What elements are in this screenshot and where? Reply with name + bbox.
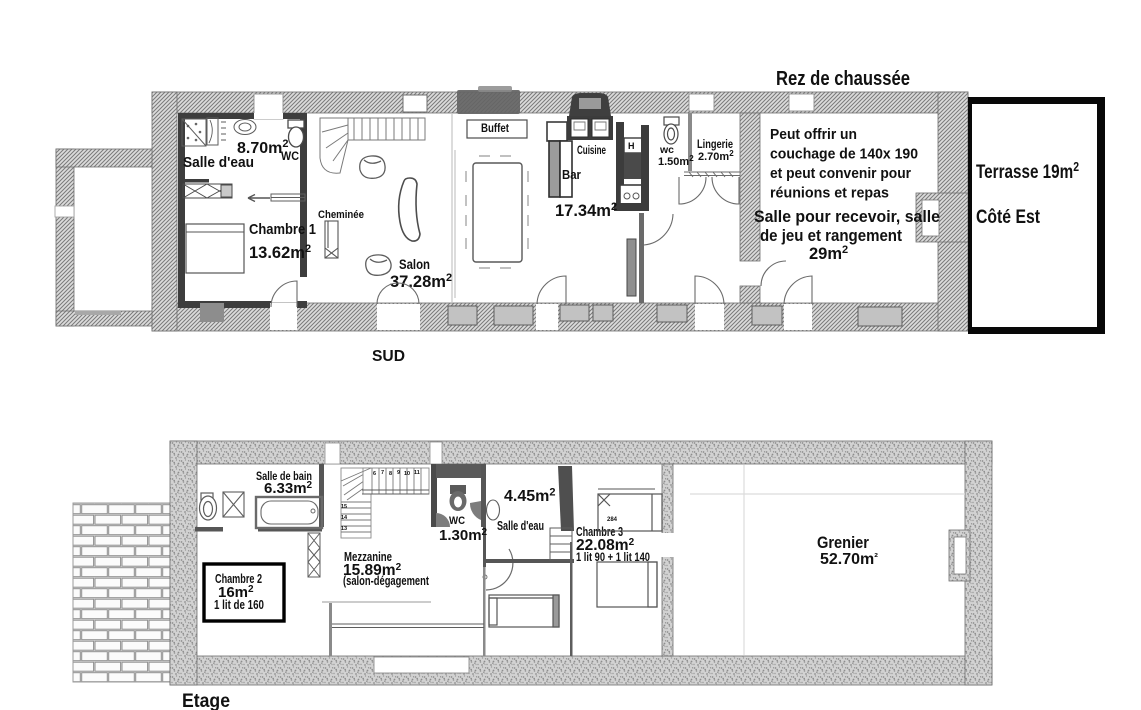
svg-text:Cheminée: Cheminée xyxy=(318,209,364,221)
svg-text:Buffet: Buffet xyxy=(481,121,509,135)
svg-text:Etage: Etage xyxy=(182,690,230,710)
svg-text:wc: wc xyxy=(659,144,674,156)
svg-text:10: 10 xyxy=(404,471,410,477)
svg-text:9: 9 xyxy=(397,470,400,476)
svg-text:Cuisine: Cuisine xyxy=(577,145,606,157)
svg-text:8: 8 xyxy=(389,471,392,477)
svg-text:(salon-dégagement: (salon-dégagement xyxy=(343,574,430,588)
svg-text:17.34m2: 17.34m2 xyxy=(555,201,617,220)
svg-text:de jeu et rangement: de jeu et rangement xyxy=(760,227,902,245)
svg-text:réunions et repas: réunions et repas xyxy=(770,185,889,202)
svg-text:Terrasse 19m2: Terrasse 19m2 xyxy=(976,159,1079,183)
svg-text:1.50m2: 1.50m2 xyxy=(658,154,694,168)
svg-text:Côté Est: Côté Est xyxy=(976,207,1041,228)
svg-text:37.28m2: 37.28m2 xyxy=(390,272,452,291)
svg-text:couchage de 140x 190: couchage de 140x 190 xyxy=(770,146,918,163)
svg-text:2.70m2: 2.70m2 xyxy=(698,149,734,163)
svg-text:Peut offrir un: Peut offrir un xyxy=(770,126,857,143)
svg-text:6: 6 xyxy=(373,471,376,477)
svg-text:14: 14 xyxy=(341,515,348,521)
svg-text:15: 15 xyxy=(341,504,347,510)
svg-text:4.45m2: 4.45m2 xyxy=(504,487,556,506)
svg-text:Chambre 1: Chambre 1 xyxy=(249,221,316,238)
svg-text:Salon: Salon xyxy=(399,256,430,272)
svg-text:H: H xyxy=(628,141,635,151)
svg-text:7: 7 xyxy=(381,470,384,476)
svg-text:1.30m2: 1.30m2 xyxy=(439,527,488,544)
svg-text:284: 284 xyxy=(607,517,618,523)
svg-text:Grenier: Grenier xyxy=(817,533,869,552)
svg-text:Salle pour recevoir, salle: Salle pour recevoir, salle xyxy=(754,208,940,226)
svg-text:WC: WC xyxy=(281,149,299,163)
svg-text:Rez de chaussée: Rez de chaussée xyxy=(776,68,910,90)
svg-text:13.62m2: 13.62m2 xyxy=(249,243,311,262)
svg-text:11: 11 xyxy=(414,470,420,476)
svg-text:et peut convenir pour: et peut convenir pour xyxy=(770,165,911,182)
svg-text:SUD: SUD xyxy=(372,348,405,365)
svg-text:Bar: Bar xyxy=(562,167,581,182)
svg-text:13: 13 xyxy=(341,526,347,532)
svg-text:Salle d'eau: Salle d'eau xyxy=(183,154,254,171)
svg-text:1 lit de 160: 1 lit de 160 xyxy=(214,598,264,612)
svg-text:6.33m2: 6.33m2 xyxy=(264,480,313,497)
svg-text:WC: WC xyxy=(449,515,465,527)
svg-text:Lingerie: Lingerie xyxy=(697,139,733,151)
svg-text:Salle d'eau: Salle d'eau xyxy=(497,519,544,533)
svg-text:52.70m²: 52.70m² xyxy=(820,551,878,568)
